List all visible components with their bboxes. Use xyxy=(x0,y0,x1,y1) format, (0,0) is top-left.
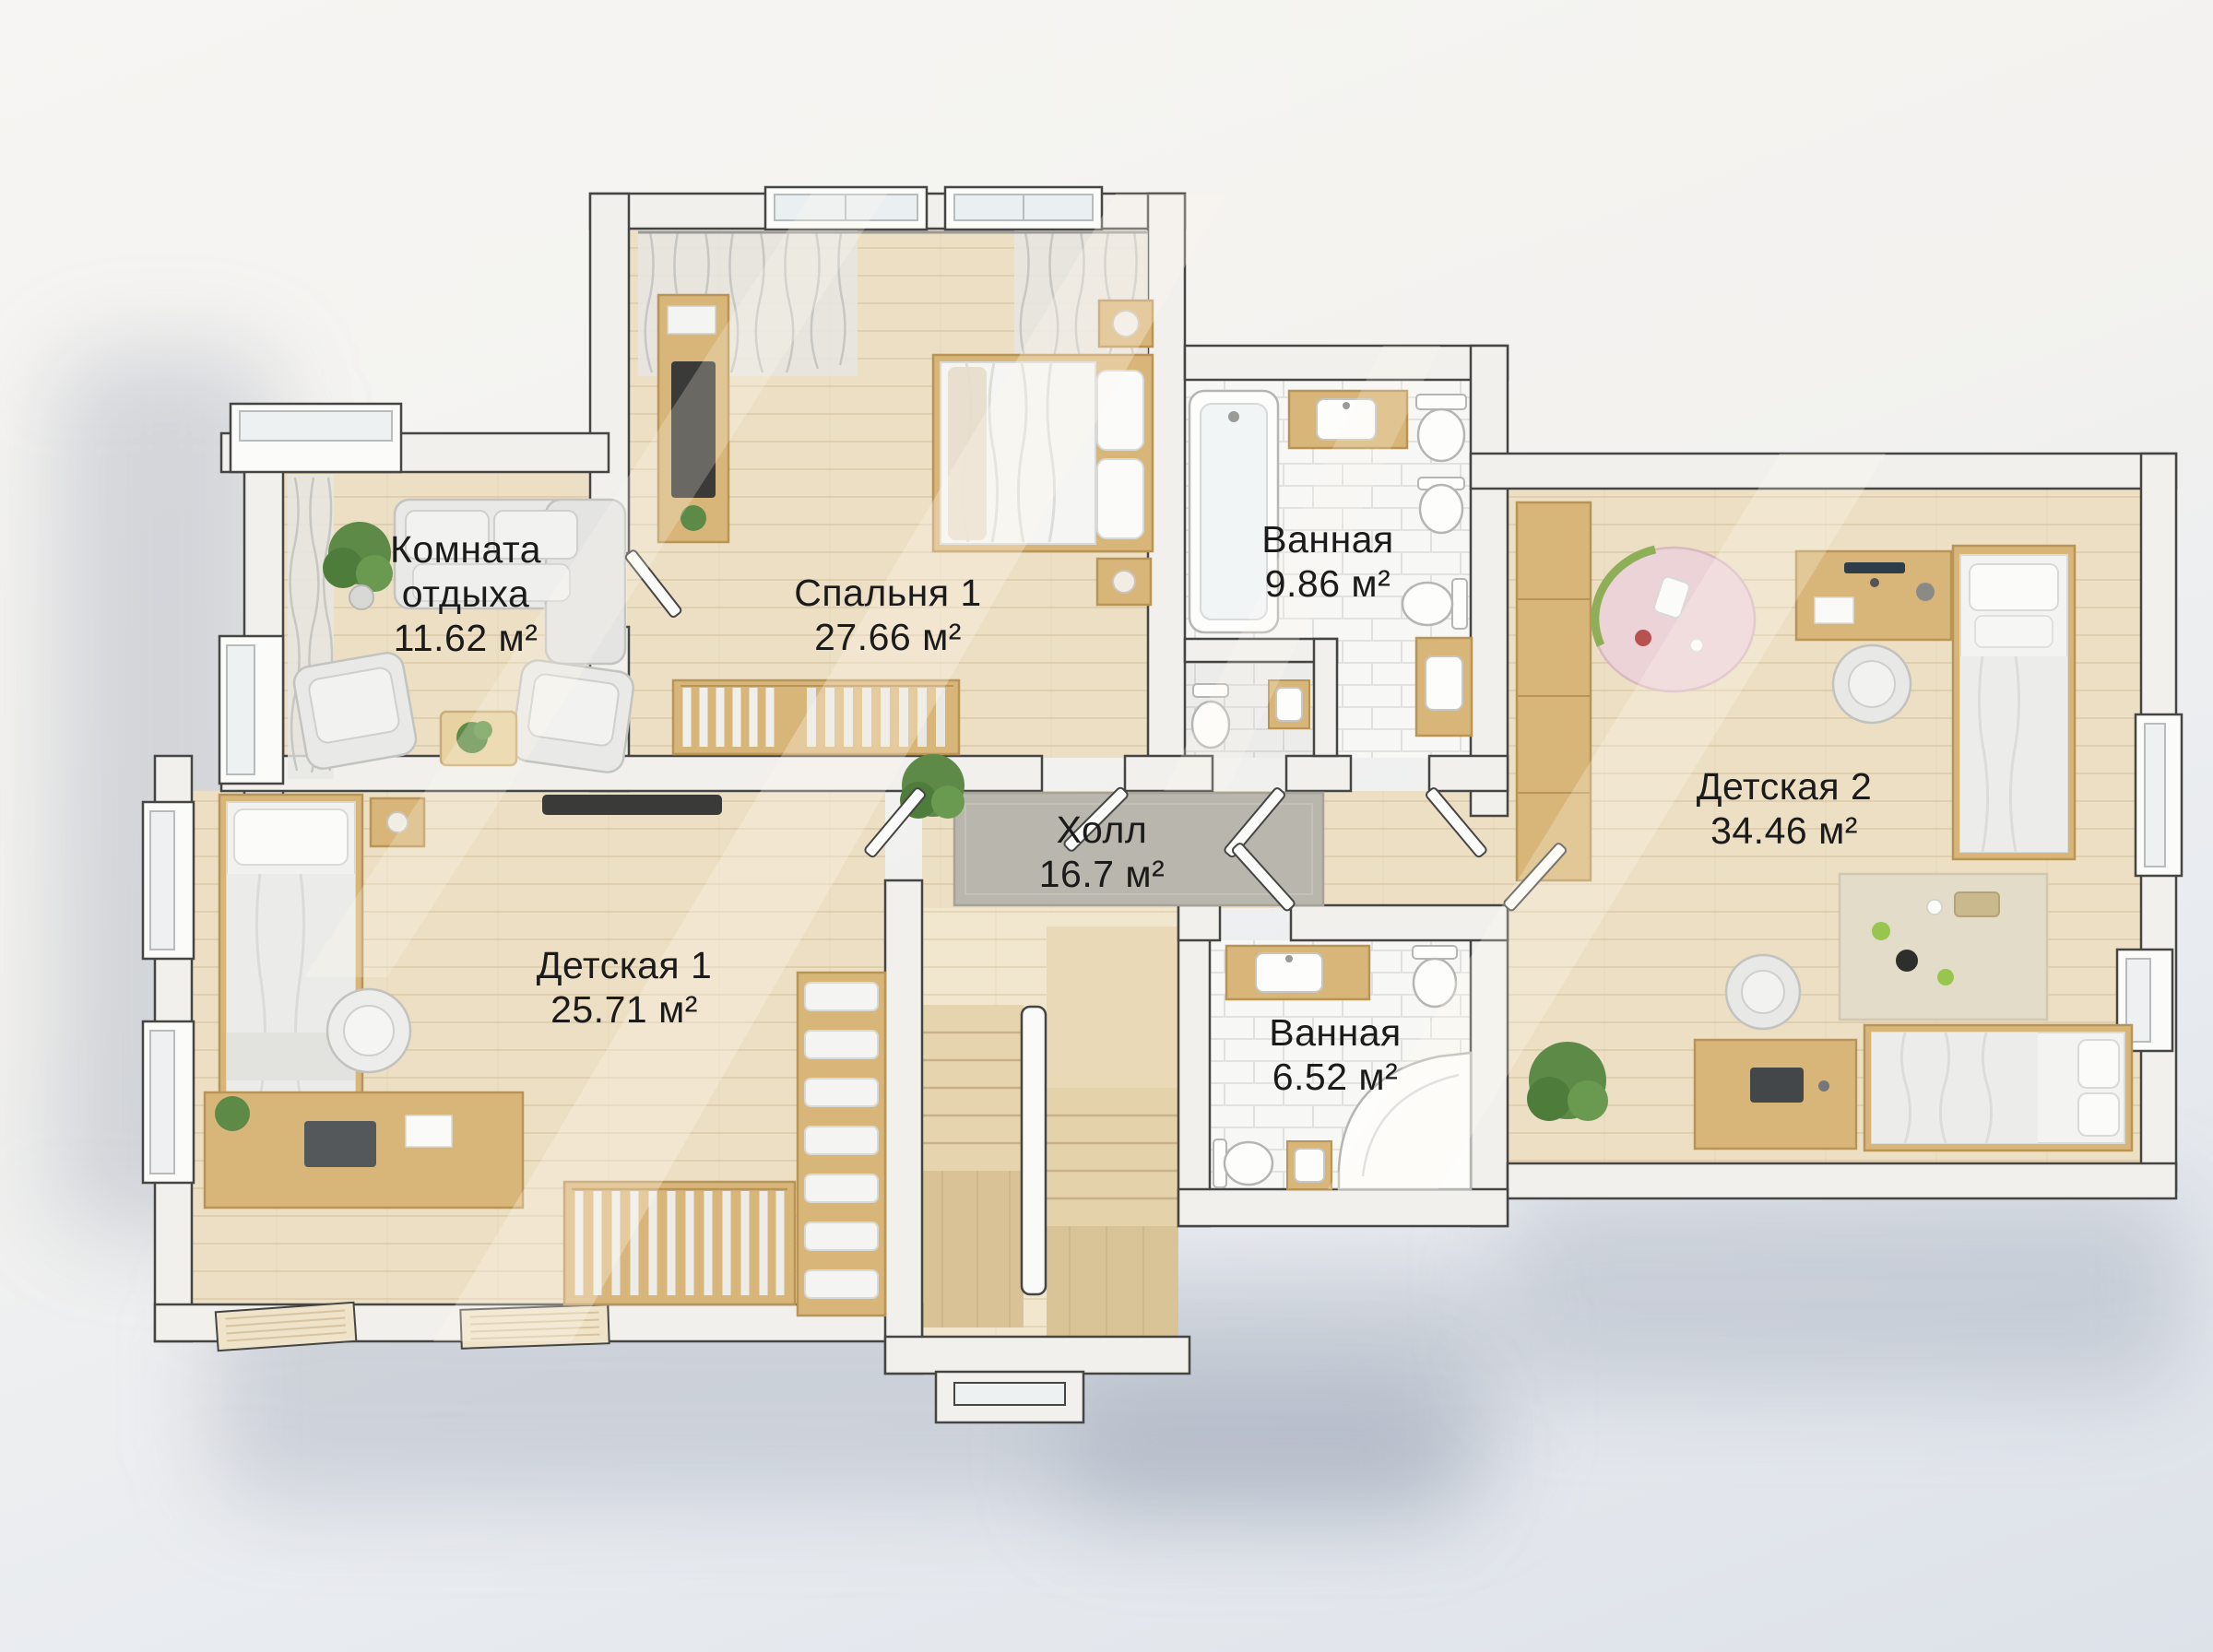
room-label-bathroom-1: Ванная 9.86 м² xyxy=(1180,518,1475,607)
single-bed xyxy=(1864,1025,2132,1150)
office-chair xyxy=(327,989,410,1072)
wc-sink xyxy=(1269,680,1309,728)
wall-tv xyxy=(542,795,722,815)
room-area: 11.62 м² xyxy=(350,617,581,661)
pillow xyxy=(2078,1093,2119,1136)
room-name: Ванная xyxy=(1180,518,1475,562)
desk-plant xyxy=(215,1096,250,1131)
duvet xyxy=(1872,1032,2038,1143)
stairs-railing xyxy=(1022,1007,1046,1294)
monitor xyxy=(1844,562,1905,573)
office-chair xyxy=(1833,645,1911,723)
rest-room-bay-window xyxy=(231,404,401,472)
rest-room-left-window xyxy=(219,636,283,784)
armchair xyxy=(510,658,635,774)
room-name: Спальня 1 xyxy=(740,572,1035,616)
pillow xyxy=(234,809,348,865)
open-wardrobe xyxy=(564,1182,795,1304)
coffee-table xyxy=(441,712,516,765)
toilet xyxy=(1213,1139,1272,1187)
papers xyxy=(406,1115,452,1147)
room-area: 16.7 м² xyxy=(954,853,1249,897)
vanity-sink xyxy=(1416,638,1472,736)
bedroom-window-right xyxy=(945,187,1102,230)
nightstand xyxy=(1099,301,1153,347)
wall-wc-right xyxy=(1314,639,1337,756)
nursery-1-window-upper xyxy=(143,802,194,959)
bedroom-window-left xyxy=(765,187,927,230)
room-label-rest-room: Комната отдыха 11.62 м² xyxy=(350,528,581,661)
room-label-nursery-2: Детская 2 34.46 м² xyxy=(1637,765,1932,854)
wall-bathroom-2-top-b xyxy=(1291,905,1508,940)
desk xyxy=(205,1092,523,1208)
plant-on-console xyxy=(680,505,706,531)
pillow xyxy=(1097,371,1143,450)
wall-east-upper xyxy=(1471,346,1508,816)
room-name: Детская 2 xyxy=(1637,765,1932,809)
stairs-left-flight xyxy=(915,1005,1024,1327)
play-mat xyxy=(1592,548,1755,691)
laptop xyxy=(304,1121,376,1167)
toilet xyxy=(1416,395,1466,461)
wall-mid-right-b xyxy=(1429,756,1508,791)
pillow xyxy=(1970,564,2058,610)
room-area: 25.71 м² xyxy=(477,988,772,1032)
nursery-1-bottom-sill-right xyxy=(460,1304,609,1349)
wardrobe xyxy=(673,680,959,754)
office-chair xyxy=(1726,955,1800,1029)
nightstand xyxy=(1097,559,1151,605)
small-sink xyxy=(1287,1141,1331,1189)
single-bed xyxy=(219,795,362,1113)
papers xyxy=(1815,597,1853,623)
bed-throw xyxy=(948,367,987,540)
room-area: 34.46 м² xyxy=(1637,809,1932,854)
tv-console xyxy=(658,295,728,542)
single-bed xyxy=(1953,546,2075,859)
wc-toilet xyxy=(1192,684,1229,748)
wardrobe xyxy=(1517,502,1591,880)
stairs-bay-window xyxy=(954,1383,1065,1405)
vanity-sink xyxy=(1289,391,1407,448)
room-area: 6.52 м² xyxy=(1188,1056,1483,1100)
wall-bathroom-2-top-a xyxy=(1178,905,1220,940)
nightstand xyxy=(371,798,424,846)
nursery-1-window-lower xyxy=(143,1021,194,1183)
armchair xyxy=(291,650,419,771)
wall-nursery-1-right xyxy=(885,880,922,1374)
room-label-hall: Холл 16.7 м² xyxy=(954,808,1249,897)
pillow xyxy=(1097,459,1143,538)
tv xyxy=(671,361,716,498)
floor-plan-image: Комната отдыха 11.62 м² Спальня 1 27.66 … xyxy=(0,0,2213,1652)
shelving-unit xyxy=(798,973,885,1316)
toy-rug xyxy=(1840,874,2047,1020)
room-name: Холл xyxy=(954,808,1249,853)
room-name: Ванная xyxy=(1188,1011,1483,1056)
toilet xyxy=(1413,946,1457,1007)
room-name: Комната отдыха xyxy=(350,528,581,617)
faucet xyxy=(1228,411,1239,422)
laptop xyxy=(1750,1068,1804,1103)
room-area: 9.86 м² xyxy=(1180,562,1475,607)
pillow xyxy=(1975,616,2053,647)
wall-stairs-bottom xyxy=(885,1337,1189,1374)
wall-nursery-2-top xyxy=(1471,454,2176,489)
wall-nursery-2-bottom xyxy=(1508,1163,2176,1198)
wall-mid-center xyxy=(1125,756,1213,791)
wall-mid-right-a xyxy=(1286,756,1351,791)
room-label-bathroom-2: Ванная 6.52 м² xyxy=(1188,1011,1483,1100)
nursery-2-right-window xyxy=(2136,714,2182,876)
pillow xyxy=(2078,1040,2119,1088)
room-label-bedroom-1: Спальня 1 27.66 м² xyxy=(740,572,1035,660)
desk xyxy=(1796,551,1951,640)
wall-bathroom-2-bottom xyxy=(1178,1189,1508,1226)
room-label-nursery-1: Детская 1 25.71 м² xyxy=(477,944,772,1032)
room-name: Детская 1 xyxy=(477,944,772,988)
stairs-right-flight xyxy=(1047,1088,1178,1337)
room-area: 27.66 м² xyxy=(740,616,1035,660)
wall-bathroom-1-top xyxy=(1185,346,1508,380)
desk xyxy=(1695,1040,1856,1149)
double-bed xyxy=(933,355,1153,551)
vanity-sink xyxy=(1226,946,1369,999)
desk-item xyxy=(1916,583,1935,601)
